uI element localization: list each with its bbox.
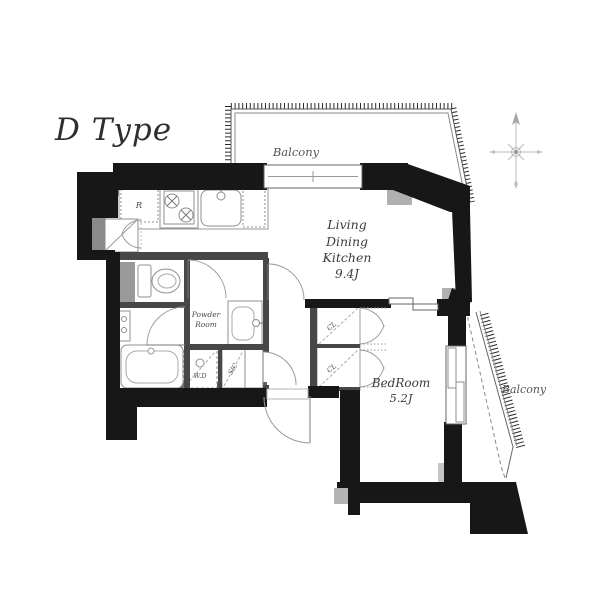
- compass-east-tip: [537, 150, 543, 154]
- bedroom-size-label: 5.2J: [390, 391, 414, 405]
- powder-door-arc: [263, 352, 296, 385]
- wall-southeast-chunk: [460, 482, 528, 534]
- closet-upper-door-arc-1: [360, 308, 384, 327]
- powder-room-label-line2: Room: [194, 320, 217, 329]
- wall-wd-north: [184, 344, 263, 350]
- wall-west-upper: [77, 172, 92, 258]
- bedroom-label: BedRoom: [371, 376, 430, 390]
- ldk-label-line3: Kitchen: [322, 250, 372, 265]
- balcony-top-label: Balcony: [272, 145, 320, 159]
- vanity-bowl: [232, 307, 254, 340]
- balcony-right-railing-hatch: [484, 314, 521, 448]
- bath-faucet-1: [122, 317, 127, 322]
- wall-north: [113, 163, 267, 190]
- closet-upper-door-arc-2: [360, 325, 384, 344]
- entrance-door-arc: [264, 397, 310, 443]
- fixtures: [105, 185, 360, 390]
- kitchen-cabinet: [243, 189, 265, 227]
- wall-hall-north-stub: [305, 299, 317, 308]
- wall-southwest-stub: [106, 388, 137, 440]
- bath-faucet-2: [122, 328, 127, 333]
- wall-hall-east: [310, 305, 317, 390]
- balcony-right-label: Balcony: [501, 383, 547, 396]
- ldk-label-size: 9.4J: [335, 267, 360, 281]
- wall-wc-east: [184, 253, 190, 305]
- bathtub-inner: [126, 351, 178, 383]
- pillar-alcove: [334, 488, 348, 504]
- wall-bedroom-east-lower: [444, 422, 462, 484]
- compass-south-tail: [514, 179, 518, 189]
- balcony-right-boundary-dashed: [466, 310, 505, 478]
- ldk-label-line1: Living: [326, 217, 366, 232]
- floor-plan: Balcony Balcony Living Dining Kitchen 9.…: [0, 0, 606, 609]
- ldk-label-line2: Dining: [325, 234, 368, 249]
- toilet-bowl-inner: [158, 274, 176, 288]
- bedroom-window-panel-2: [456, 382, 464, 422]
- wc-door-arc: [188, 260, 226, 298]
- floor-plan-drawing: Balcony Balcony Living Dining Kitchen 9.…: [0, 0, 606, 609]
- kitchen-faucet: [217, 192, 225, 200]
- wall-wd-sic-divider: [218, 348, 222, 388]
- wall-entrance-east-piece: [308, 386, 339, 398]
- bathtub-faucet: [148, 348, 154, 354]
- refrigerator-label: R: [135, 201, 143, 211]
- bedroom-window-panel-1: [448, 348, 456, 388]
- page-title: D Type: [54, 112, 172, 148]
- wall-west-lower: [106, 252, 120, 407]
- wall-bedroom-east-upper: [448, 315, 466, 348]
- wall-alcove-step: [348, 488, 360, 515]
- vanity-faucet: [253, 320, 260, 327]
- ldk-door-arc: [268, 264, 304, 300]
- wall-alcove-east: [340, 390, 360, 490]
- powder-room-label-line1: Powder: [191, 310, 221, 319]
- compass-center-dot: [514, 150, 517, 153]
- wall-closet-divider: [317, 344, 360, 348]
- compass-west-tip: [489, 150, 495, 154]
- bedroom-sliding-door-panel-1: [389, 298, 413, 304]
- wall-bedroom-north: [317, 299, 391, 308]
- shoe-closet-box-2: [245, 349, 263, 388]
- bath-door-arc: [147, 307, 185, 345]
- compass-north-icon: [489, 112, 543, 189]
- washer-dryer-label: W.D: [194, 372, 208, 380]
- bedroom-sliding-door-panel-2: [413, 304, 438, 310]
- entrance-opening: [267, 389, 308, 399]
- balcony-right-railing-inner: [480, 311, 517, 446]
- pipe-space: [118, 262, 135, 303]
- wall-face-kitchen-alcove: [90, 216, 106, 254]
- closet-lower-door-arc-1: [360, 350, 384, 369]
- toilet-tank: [138, 265, 151, 297]
